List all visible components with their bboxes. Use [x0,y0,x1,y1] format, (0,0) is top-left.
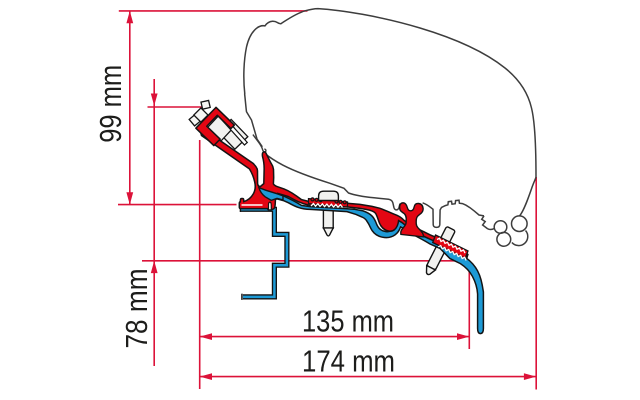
svg-text:78 mm: 78 mm [120,269,154,349]
svg-text:99 mm: 99 mm [94,65,128,143]
svg-text:135 mm: 135 mm [302,305,394,339]
svg-text:174 mm: 174 mm [302,345,395,379]
